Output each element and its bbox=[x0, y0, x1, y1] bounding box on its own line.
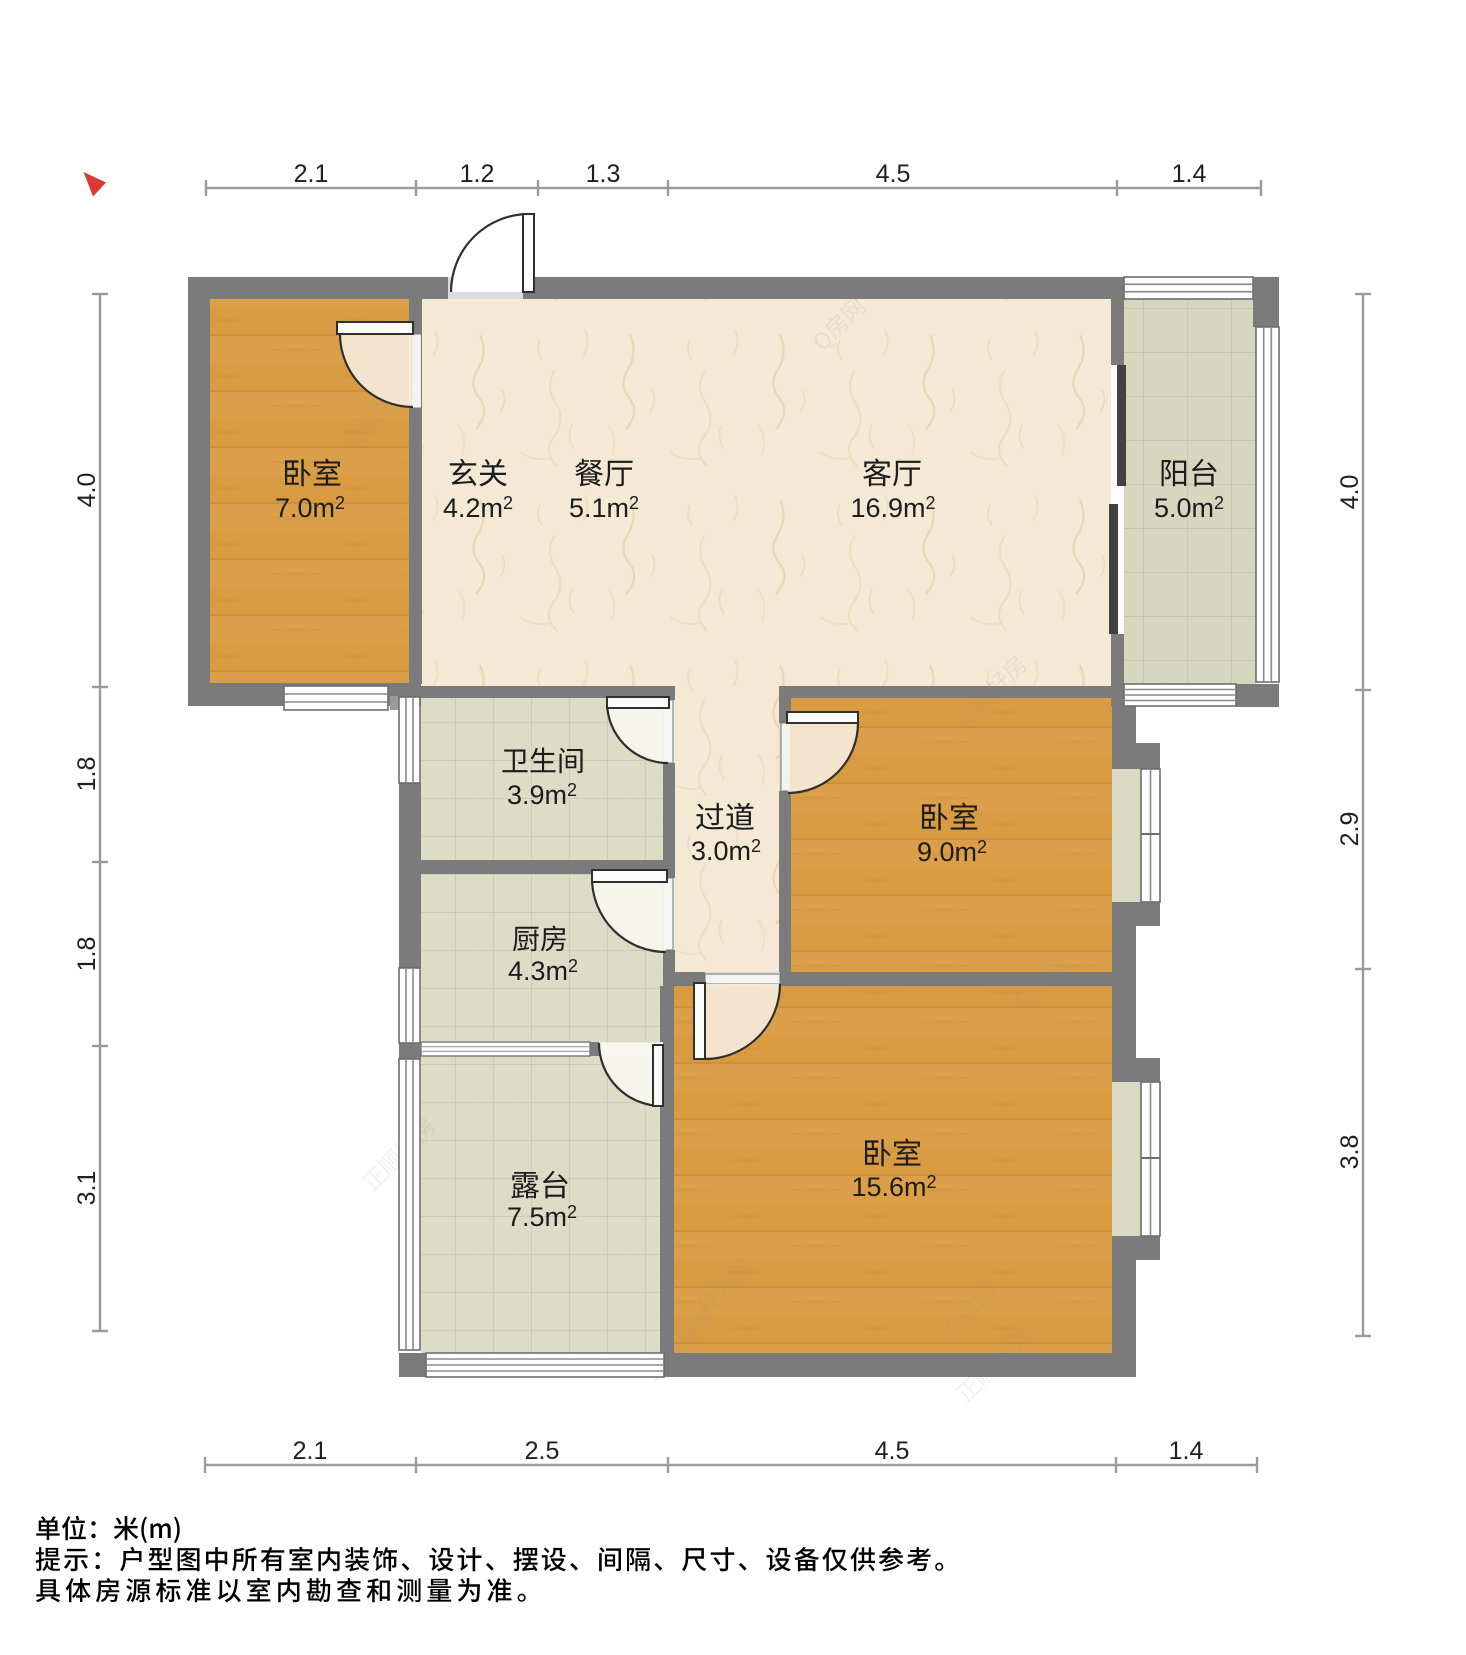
svg-text:9.0m2: 9.0m2 bbox=[917, 837, 987, 867]
svg-text:4.3m2: 4.3m2 bbox=[508, 956, 578, 986]
svg-text:3.8: 3.8 bbox=[1336, 1135, 1364, 1170]
svg-text:4.5: 4.5 bbox=[875, 1437, 910, 1465]
svg-text:2.1: 2.1 bbox=[293, 1437, 328, 1465]
svg-text:7.0m2: 7.0m2 bbox=[275, 493, 345, 523]
svg-text:1.4: 1.4 bbox=[1169, 1437, 1204, 1465]
svg-text:5.0m2: 5.0m2 bbox=[1154, 493, 1224, 523]
svg-text:1.8: 1.8 bbox=[73, 937, 101, 972]
svg-text:1.2: 1.2 bbox=[460, 160, 495, 188]
svg-text:1.8: 1.8 bbox=[73, 757, 101, 792]
svg-text:3.0m2: 3.0m2 bbox=[691, 836, 761, 866]
svg-text:4.2m2: 4.2m2 bbox=[443, 493, 513, 523]
svg-text:7.5m2: 7.5m2 bbox=[507, 1202, 577, 1232]
svg-text:2.1: 2.1 bbox=[294, 160, 329, 188]
svg-text:15.6m2: 15.6m2 bbox=[851, 1172, 936, 1202]
svg-text:4.5: 4.5 bbox=[876, 160, 911, 188]
svg-text:3.1: 3.1 bbox=[73, 1171, 101, 1206]
svg-text:4.0: 4.0 bbox=[1336, 475, 1364, 510]
svg-text:16.9m2: 16.9m2 bbox=[850, 493, 935, 523]
svg-text:5.1m2: 5.1m2 bbox=[569, 493, 639, 523]
svg-text:4.0: 4.0 bbox=[73, 473, 101, 508]
svg-text:1.4: 1.4 bbox=[1172, 160, 1207, 188]
svg-text:2.5: 2.5 bbox=[525, 1437, 560, 1465]
svg-text:3.9m2: 3.9m2 bbox=[507, 780, 577, 810]
svg-text:1.3: 1.3 bbox=[586, 160, 621, 188]
svg-text:2.9: 2.9 bbox=[1336, 812, 1364, 847]
